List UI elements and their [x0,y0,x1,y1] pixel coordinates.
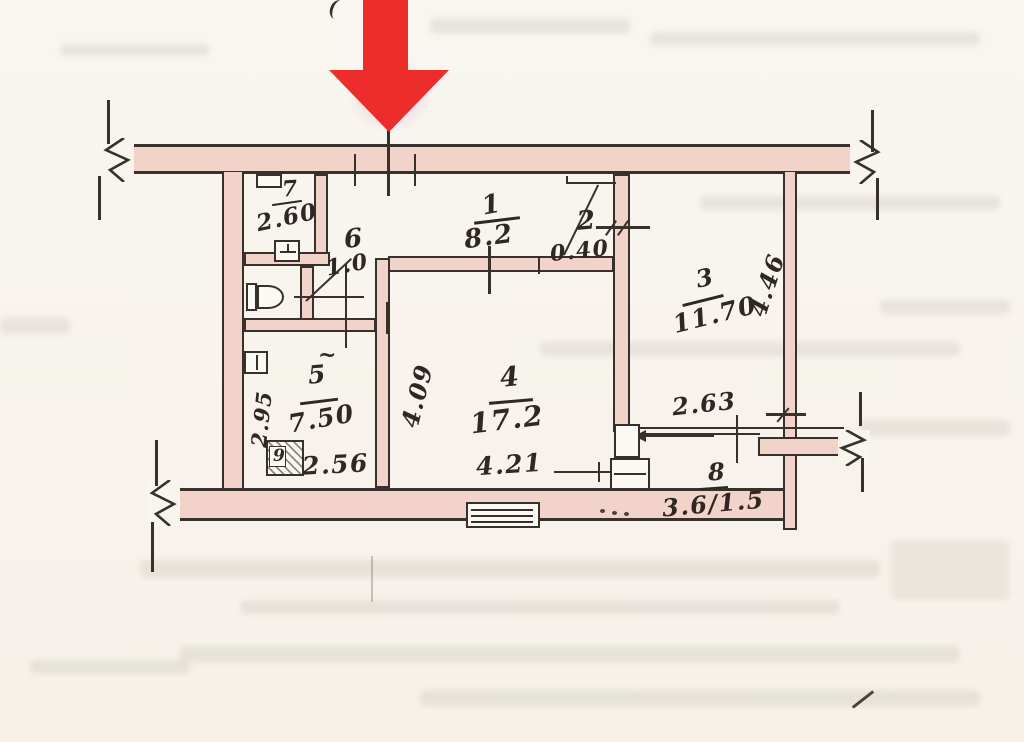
toilet-tank-icon [246,283,257,311]
room7-number: 7 [281,177,299,200]
red-down-arrow-head [329,70,449,132]
pencil-dot [624,512,629,516]
left-exterior-wall [222,172,244,490]
bottom-wall-left-tick-above [155,440,158,486]
scan-smudge [0,318,70,334]
room5-width-dim: 2.56 [301,450,369,478]
pencil-dot [612,511,617,515]
stub-tick-below [861,458,864,492]
room2-number: 2 [576,207,598,235]
wc-door-tick-v2 [386,302,388,334]
scan-smudge [540,342,960,356]
balcony-door-leaf [614,424,640,458]
scan-smudge [180,646,960,662]
top-wall-right-tick-above [871,110,874,152]
bottom-wall-left-tick-below [151,522,154,572]
wall-break-right-stub [838,430,870,466]
scan-smudge [240,600,840,614]
balcony-width-dim: 2.63 [671,389,738,420]
scan-smudge [650,32,980,46]
top-exterior-wall [116,144,872,174]
closet-top-line [566,182,616,184]
hall-room3-divider-wall [613,174,630,432]
room1-area: 8.2 [462,221,515,254]
balcony-top-wall [758,437,844,456]
room4-area: 17.2 [469,402,546,439]
wall-break-bottom-left [146,480,180,526]
scan-smudge [880,300,1010,314]
scan-smudge [700,196,1000,210]
fold-mark [371,556,373,602]
room3-number: 3 [694,264,717,291]
room1-number: 1 [480,190,504,219]
scanned-floor-plan-page: 1 8.2 2 0.40 3 11.70 4.46 4 17.2 4.21 4.… [0,0,1024,742]
right-exterior-wall [783,172,797,530]
red-down-arrow-icon [363,0,408,74]
dim-421-tick [598,462,600,482]
bathroom-niche [256,174,282,188]
stub-tick-above [859,392,862,426]
room9-number: 9 [273,448,286,465]
room5-number: 5 [307,361,328,388]
hall-wall-tick-small [538,258,540,274]
balcony-dim-tick [736,415,738,463]
entrance-jamb-right [414,154,416,186]
living-room-left-wall [375,258,390,488]
balcony-dim-line [646,435,714,437]
room7-area: 2.60 [254,200,319,235]
top-wall-right-tick-below [876,178,879,220]
closet-top-stub [566,176,568,184]
scan-smudge [420,690,980,706]
wall-break-top-left [100,138,134,182]
scan-smudge [890,540,1010,600]
window-icon [466,502,540,528]
top-wall-left-tick-above [107,100,110,144]
scan-smudge [60,44,210,56]
pencil-dot [600,509,605,513]
scan-smudge [30,660,190,674]
scan-smudge [140,560,880,578]
room8-number: 8 [707,460,726,485]
toilet-bowl-icon [257,285,284,309]
kitchen-sink-icon [244,351,268,374]
room6-area: 1.0 [324,250,370,279]
scan-smudge [430,18,630,34]
washbasin-icon [274,240,300,262]
scan-smudge [860,420,1010,436]
room2-area: 0.40 [549,237,611,265]
room5-depth-dim: 2.95 [248,389,275,448]
entrance-jamb-left [354,154,356,186]
dim-421-line [554,471,614,473]
hall-wall-tick [488,246,491,294]
pen-curve [327,0,349,22]
kitchen-top-wall [244,318,376,332]
balcony-threshold [610,458,650,490]
right-wall-tick-line [766,413,806,416]
room4-depth-dim: 4.09 [398,361,437,429]
room5-area: 7.50 [286,400,356,436]
room4-width-dim: 4.21 [475,450,543,480]
room4-number: 4 [499,363,522,392]
wc-door-tick-h [294,296,364,298]
top-wall-left-tick-below [98,176,101,220]
